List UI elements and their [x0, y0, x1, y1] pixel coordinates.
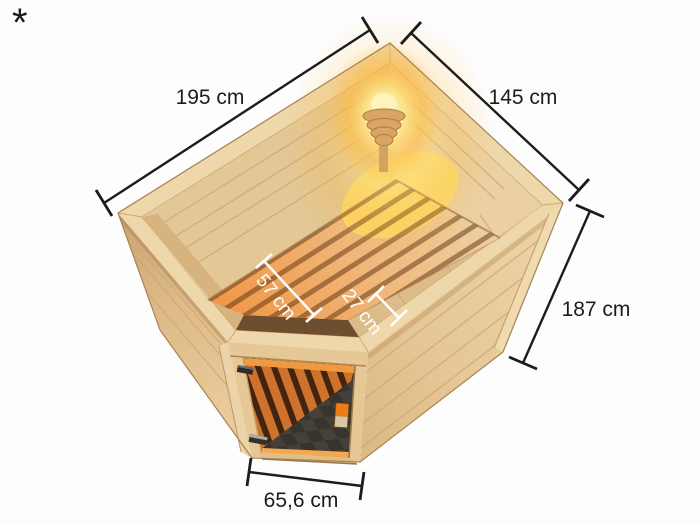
dimension-label-height: 187 cm: [562, 298, 631, 321]
dimension-label-width: 195 cm: [176, 86, 245, 109]
lamp-post: [379, 146, 388, 172]
product-dimension-image: *: [0, 0, 700, 525]
sauna-dimension-illustration: *: [0, 0, 700, 525]
footnote-asterisk: *: [12, 1, 28, 45]
dimension-label-door-width: 65,6 cm: [264, 489, 339, 512]
dimension-label-depth: 145 cm: [489, 86, 558, 109]
corner-lamp: [285, 15, 495, 265]
sauna-bucket: [334, 403, 349, 428]
